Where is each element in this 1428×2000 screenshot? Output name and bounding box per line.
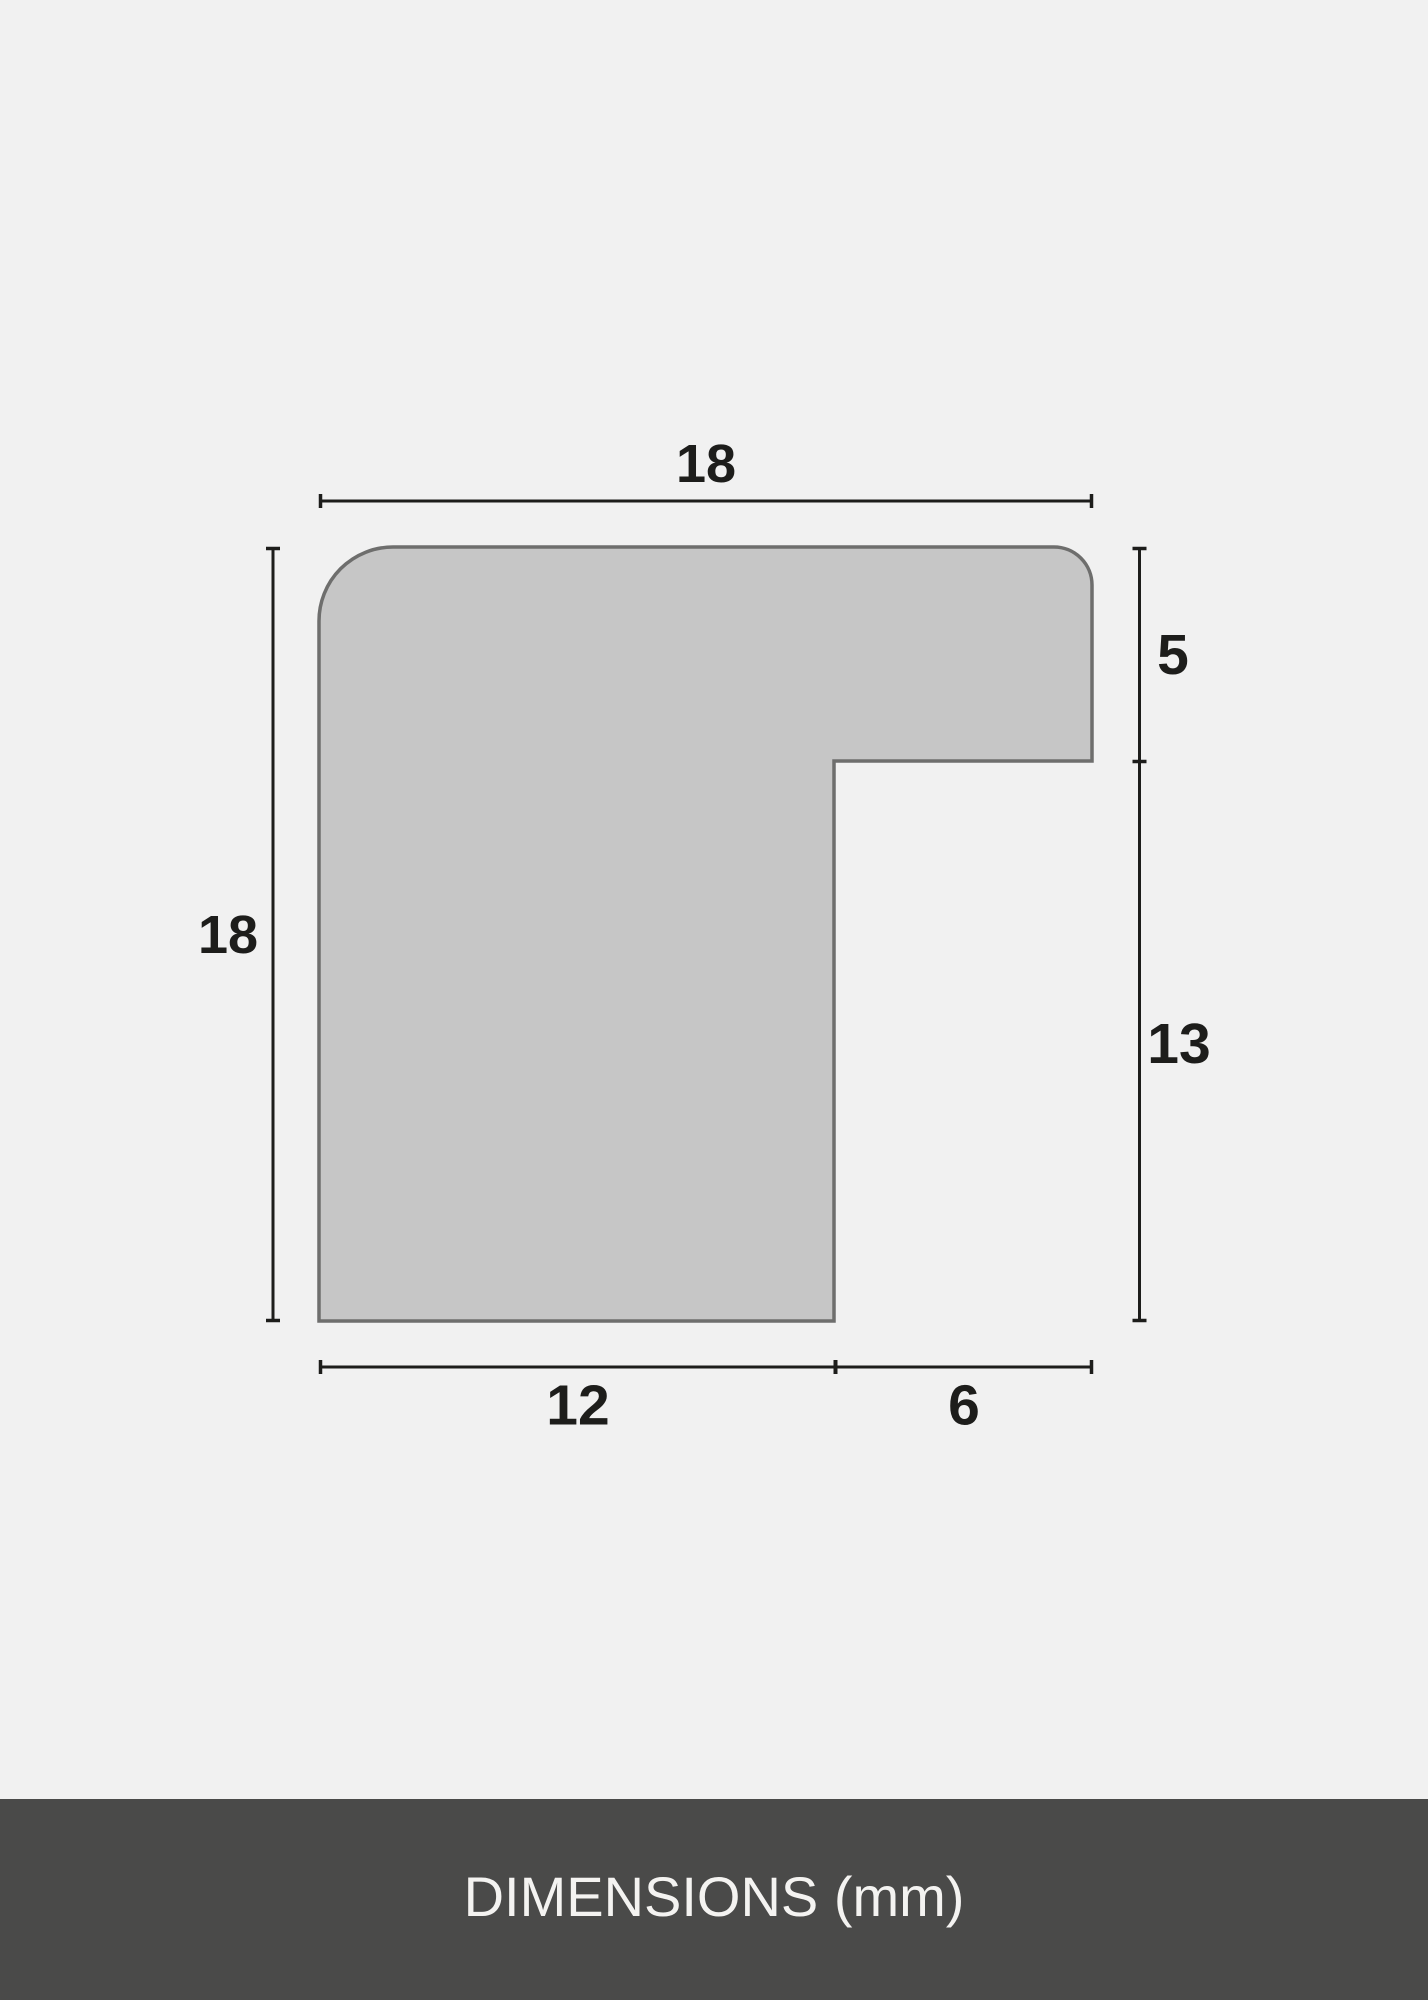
svg-text:13: 13: [1147, 1012, 1210, 1076]
svg-text:5: 5: [1157, 623, 1189, 687]
svg-text:6: 6: [948, 1374, 980, 1438]
svg-text:18: 18: [676, 434, 736, 494]
svg-text:18: 18: [198, 905, 258, 965]
svg-text:12: 12: [546, 1374, 609, 1438]
